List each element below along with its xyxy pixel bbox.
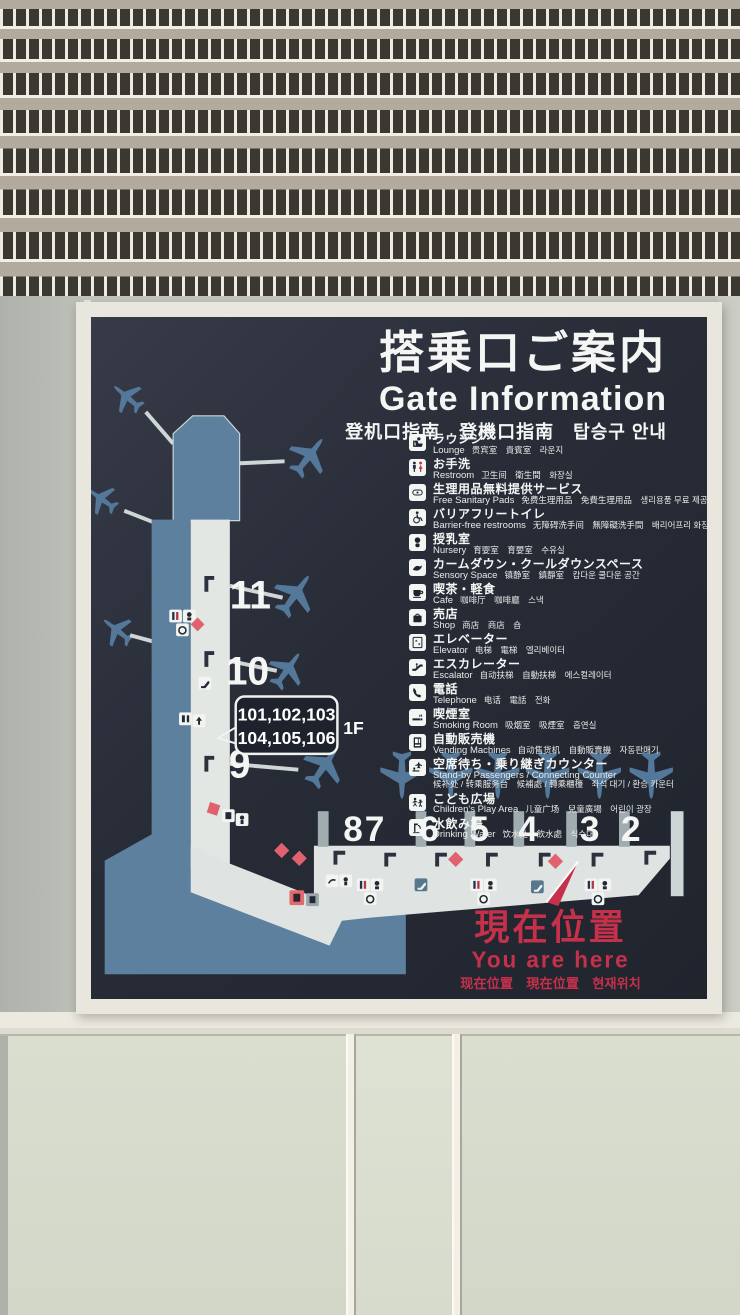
glass-panel xyxy=(0,1036,346,1315)
legend-item-restroom: お手洗 Restroom卫生间 衛生間 화장실 xyxy=(409,458,701,480)
legend-item-shop: 売店 Shop商店 商店 숍 xyxy=(409,608,701,630)
elevator-icon xyxy=(409,634,426,651)
barrier-free-icon xyxy=(409,509,426,526)
sanitary-pads-icon xyxy=(409,484,426,501)
glass-mullion xyxy=(346,1034,356,1315)
legend-item-elevator: エレベーター Elevator电梯 電梯 엘리베이터 xyxy=(409,633,701,655)
legend-item-telephone: 電話 Telephone电话 電話 전화 xyxy=(409,683,701,705)
callout-line2: 104,105,106 xyxy=(238,728,336,748)
legend-item-cafe: 喫茶・軽食 Cafe咖啡厅 咖啡廳 스낵 xyxy=(409,583,701,605)
facility-legend: ラウンジ Lounge贵宾室 貴賓室 라운지 お手洗 Restroom卫生间 衛… xyxy=(409,433,701,843)
gate-10-label: 10 xyxy=(226,649,269,693)
you-are-here-en: You are here xyxy=(472,947,630,972)
callout-line1: 101,102,103 xyxy=(238,704,336,724)
legend-item-barrier-free: バリアフリートイレ Barrier-free restrooms无障碍洗手间 無… xyxy=(409,508,701,530)
gate-101-106-callout: 101,102,103 104,105,106 1F xyxy=(218,697,364,754)
glass-mullion xyxy=(452,1034,462,1315)
shop-icon xyxy=(409,609,426,626)
escalator-icon xyxy=(409,659,426,676)
legend-item-sensory-space: カームダウン・クールダウンスペース Sensory Space镇静室 鎮靜室 캄… xyxy=(409,558,701,580)
you-are-here-ja: 現在位置 xyxy=(474,909,626,948)
children-play-area-icon xyxy=(409,794,426,811)
sign-panel: 11 10 9 8 7 6 5 4 3 2 xyxy=(91,317,707,999)
nursery-icon xyxy=(409,534,426,551)
airport-sign-photo: { "sign": { "title_ja": "搭乗口ご案内", "title… xyxy=(0,0,740,1315)
lounge-icon xyxy=(409,434,426,451)
telephone-icon xyxy=(409,684,426,701)
wall-left xyxy=(0,296,80,1036)
glass-frame-rail xyxy=(0,1012,740,1036)
you-are-here-multi: 现在位置 現在位置 현재위치 xyxy=(460,975,641,991)
legend-item-drinking-water: 水飲み場 Drinking Water饮水处 飲水處 식수대 xyxy=(409,818,701,840)
sign-titles: 搭乗口ご案内 Gate Information 登机口指南 登機口指南 탑승구 … xyxy=(345,327,667,445)
legend-item-lounge: ラウンジ Lounge贵宾室 貴賓室 라운지 xyxy=(409,433,701,455)
gate-11-label: 11 xyxy=(230,573,271,617)
legend-item-escalator: エスカレーター Escalator自动扶梯 自動扶梯 에스컬레이터 xyxy=(409,658,701,680)
cafe-icon xyxy=(409,584,426,601)
louver-facade xyxy=(0,0,740,302)
legend-item-nursery: 授乳室 Nursery育婴室 育嬰室 수유실 xyxy=(409,533,701,555)
glass-panel xyxy=(356,1036,452,1315)
title-english: Gate Information xyxy=(345,379,667,419)
vending-machines-icon xyxy=(409,734,426,751)
title-japanese: 搭乗口ご案内 xyxy=(345,327,667,379)
legend-item-sanitary-pads: 生理用品無料提供サービス Free Sanitary Pads免费生理用品 免費… xyxy=(409,483,701,505)
legend-item-children-play-area: こども広場 Children's Play Area儿童广场 兒童廣場 어린이 … xyxy=(409,793,701,815)
wall-edge xyxy=(0,1036,8,1315)
glass-panel xyxy=(462,1036,740,1315)
restroom-icon xyxy=(409,459,426,476)
drinking-water-icon xyxy=(409,819,426,836)
legend-item-standby-counter: 空席待ち・乗り継ぎカウンター Stand-by Passengers / Con… xyxy=(409,758,701,790)
legend-item-vending-machines: 自動販売機 Vending Machines自动售货机 自動販賣機 자동판매기 xyxy=(409,733,701,755)
gate-7-label: 7 xyxy=(365,810,385,849)
legend-item-smoking-room: 喫煙室 Smoking Room吸烟室 吸煙室 흡연실 xyxy=(409,708,701,730)
sensory-space-icon xyxy=(409,559,426,576)
gate-8-label: 8 xyxy=(343,810,363,849)
standby-counter-icon xyxy=(409,759,426,776)
gate-information-sign: 11 10 9 8 7 6 5 4 3 2 xyxy=(76,302,722,1014)
floor-label: 1F xyxy=(343,718,364,738)
smoking-room-icon xyxy=(409,709,426,726)
